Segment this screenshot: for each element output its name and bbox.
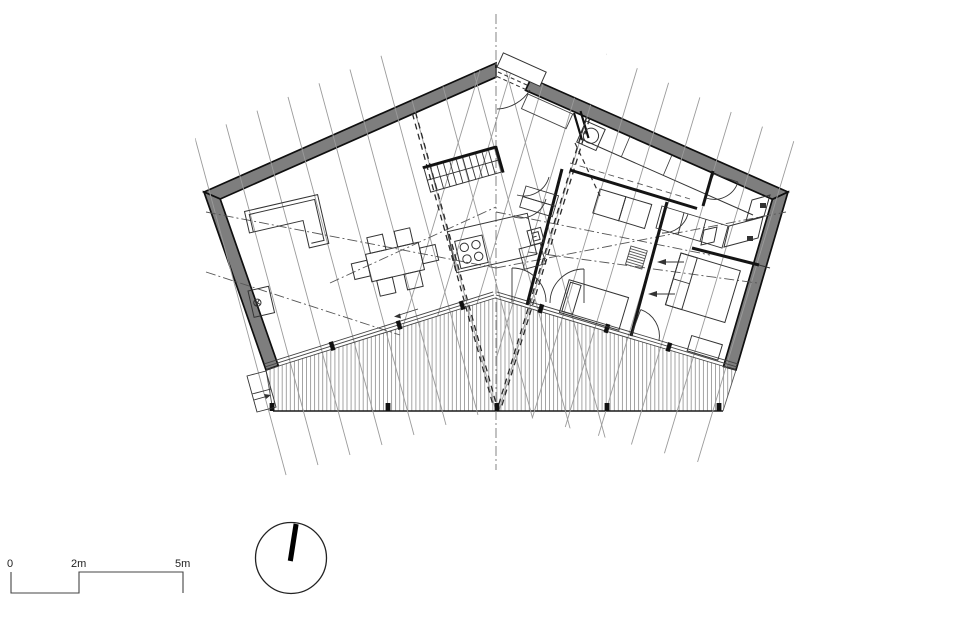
svg-text:2m: 2m <box>71 558 86 570</box>
svg-text:5m: 5m <box>175 558 190 570</box>
svg-text:0: 0 <box>7 558 13 570</box>
